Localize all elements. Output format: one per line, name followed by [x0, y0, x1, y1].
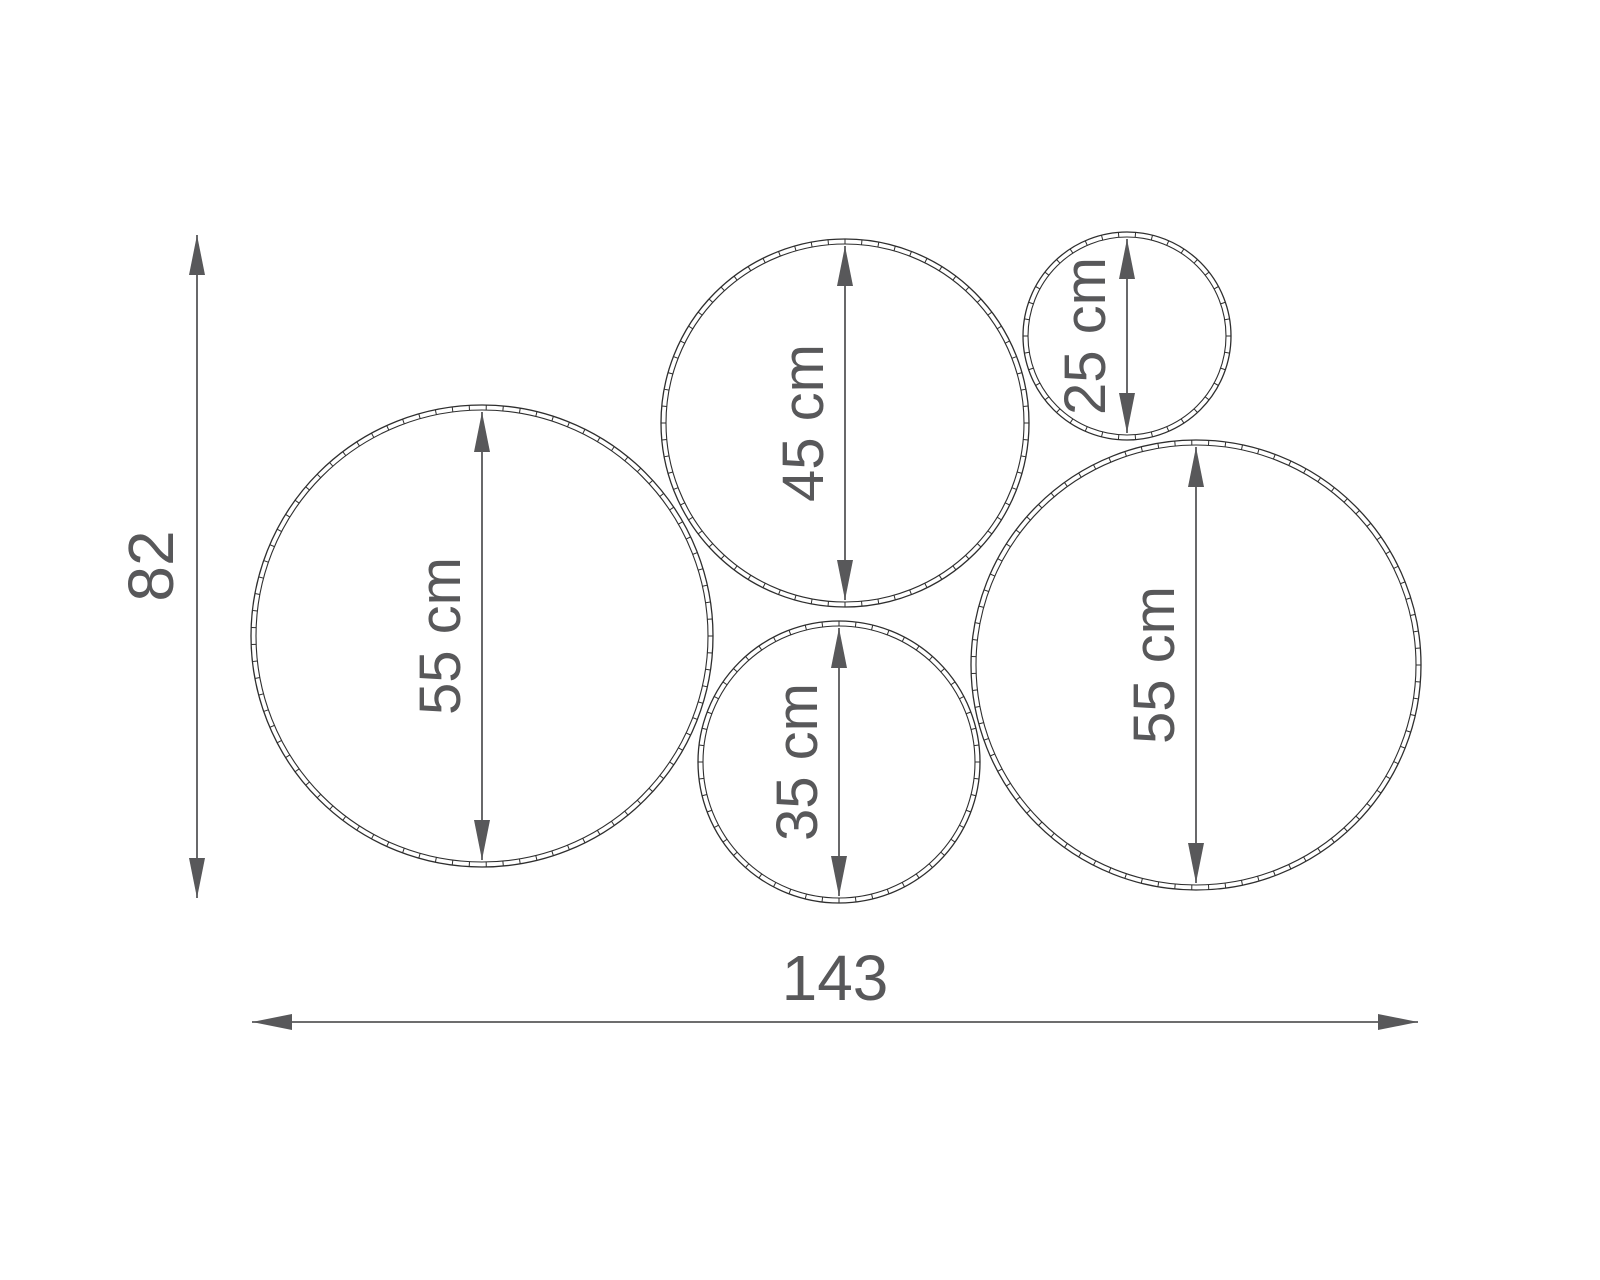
- rim-tick: [974, 778, 979, 779]
- rim-tick: [452, 407, 453, 412]
- rim-tick: [822, 897, 823, 902]
- hoop-dimension-drawing-svg: 55 cm45 cm25 cm35 cm55 cm82143: [0, 0, 1600, 1280]
- technical-drawing: 55 cm45 cm25 cm35 cm55 cm82143: [0, 0, 1600, 1280]
- diameter-label: 25 cm: [1053, 257, 1118, 415]
- rim-tick: [452, 860, 453, 865]
- rim-tick: [855, 622, 856, 627]
- drawing-background: [0, 0, 1600, 1280]
- diameter-label: 45 cm: [771, 344, 836, 502]
- rim-tick: [855, 897, 856, 902]
- rim-tick: [252, 661, 257, 662]
- overall-height-label: 82: [115, 530, 187, 601]
- rim-tick: [1225, 442, 1226, 447]
- rim-tick: [699, 745, 704, 746]
- rim-tick: [972, 640, 977, 641]
- diameter-label: 55 cm: [1122, 586, 1187, 744]
- rim-tick: [972, 690, 977, 691]
- rim-tick: [699, 778, 704, 779]
- diameter-label: 35 cm: [765, 683, 830, 841]
- diameter-label: 55 cm: [408, 557, 473, 715]
- rim-tick: [974, 745, 979, 746]
- rim-tick: [1225, 883, 1226, 888]
- rim-tick: [252, 610, 257, 611]
- overall-width-label: 143: [782, 942, 889, 1014]
- rim-tick: [822, 622, 823, 627]
